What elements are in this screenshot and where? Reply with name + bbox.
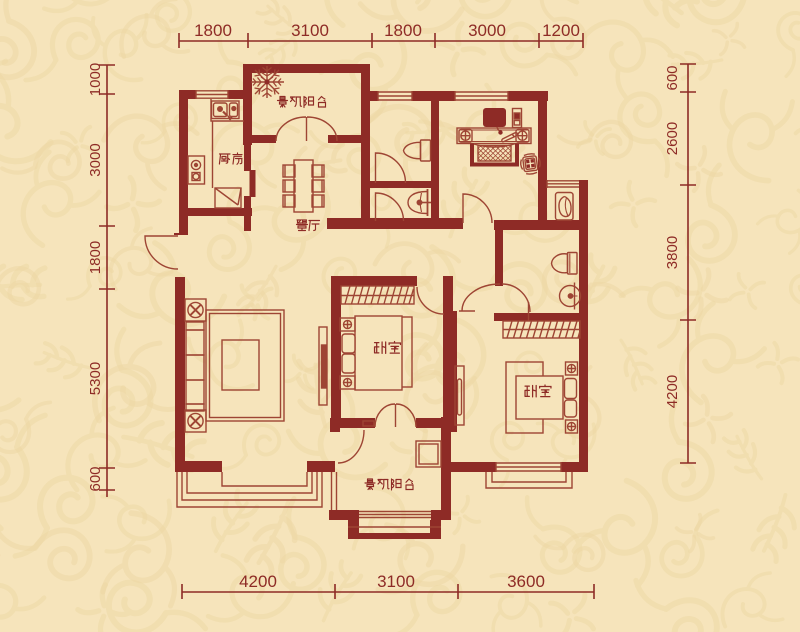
svg-text:1800: 1800 — [87, 241, 104, 274]
svg-text:1200: 1200 — [542, 21, 580, 40]
svg-text:1000: 1000 — [87, 63, 104, 96]
svg-text:3000: 3000 — [87, 143, 104, 176]
svg-text:4200: 4200 — [239, 572, 277, 591]
svg-text:4200: 4200 — [664, 375, 681, 408]
svg-text:1800: 1800 — [194, 21, 232, 40]
svg-text:2600: 2600 — [664, 122, 681, 155]
svg-text:1800: 1800 — [384, 21, 422, 40]
svg-text:600: 600 — [87, 466, 104, 491]
svg-text:3000: 3000 — [468, 21, 506, 40]
svg-text:5300: 5300 — [87, 362, 104, 395]
svg-text:600: 600 — [664, 65, 681, 90]
svg-text:3600: 3600 — [507, 572, 545, 591]
svg-text:3100: 3100 — [377, 572, 415, 591]
svg-text:3100: 3100 — [291, 21, 329, 40]
svg-text:3800: 3800 — [664, 236, 681, 269]
